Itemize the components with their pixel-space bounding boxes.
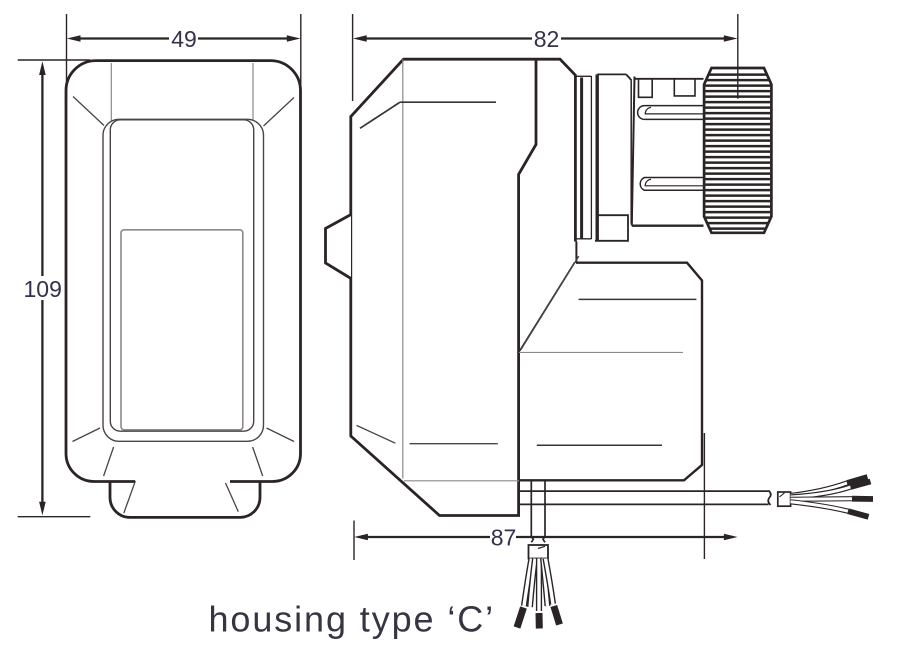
svg-text:109: 109 <box>24 276 62 302</box>
svg-text:housing type ‘C’: housing type ‘C’ <box>209 599 496 640</box>
svg-text:87: 87 <box>491 525 517 551</box>
svg-text:49: 49 <box>171 26 197 52</box>
svg-text:82: 82 <box>534 26 560 52</box>
